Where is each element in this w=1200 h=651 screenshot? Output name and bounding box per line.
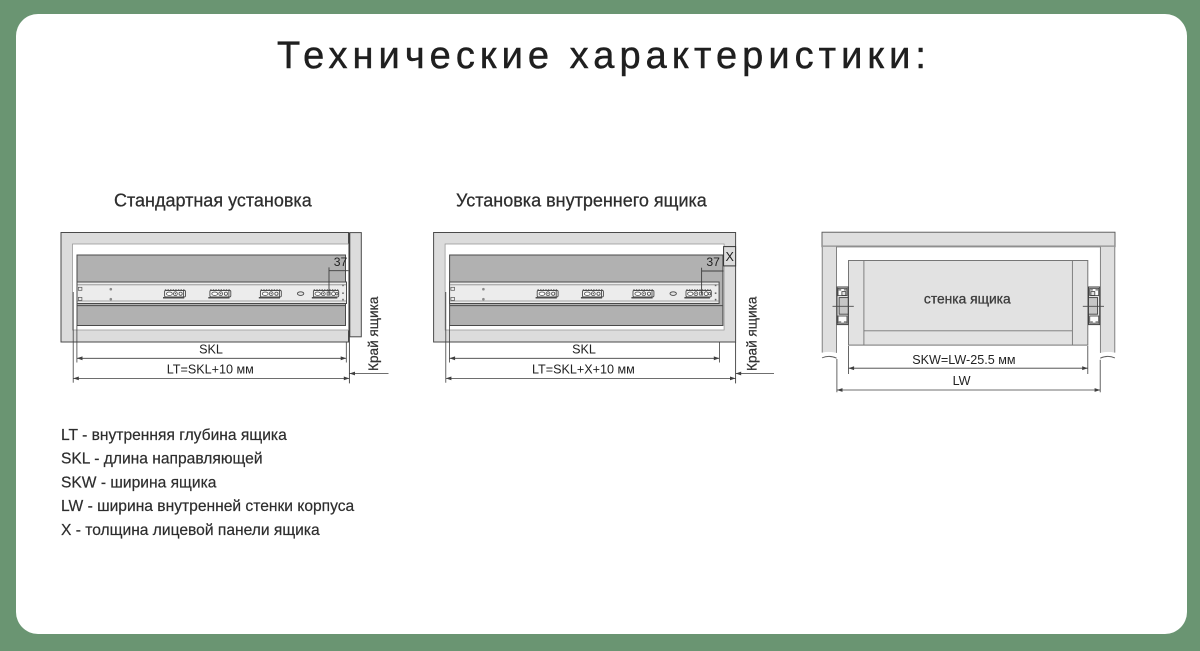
svg-text:SKW - ширина ящика: SKW - ширина ящика: [61, 474, 217, 491]
svg-text:Край ящика: Край ящика: [745, 296, 760, 371]
svg-text:Технические характеристики:: Технические характеристики:: [277, 35, 931, 77]
svg-text:LT - внутренняя глубина ящика: LT - внутренняя глубина ящика: [61, 427, 287, 444]
svg-text:LT=SKL+X+10 мм: LT=SKL+X+10 мм: [532, 362, 635, 376]
svg-text:37: 37: [706, 255, 720, 269]
svg-text:SKL: SKL: [199, 343, 223, 357]
svg-text:SKW=LW-25.5 мм: SKW=LW-25.5 мм: [912, 353, 1015, 367]
svg-text:Стандартная установка: Стандартная установка: [114, 190, 313, 210]
svg-text:Установка внутреннего ящика: Установка внутреннего ящика: [456, 190, 708, 210]
svg-text:X - толщина лицевой панели ящи: X - толщина лицевой панели ящика: [61, 522, 320, 539]
svg-text:37: 37: [334, 255, 348, 269]
svg-text:SKL - длина направляющей: SKL - длина направляющей: [61, 451, 263, 468]
svg-text:X: X: [725, 250, 734, 264]
svg-text:SKL: SKL: [572, 343, 596, 357]
svg-text:Край ящика: Край ящика: [366, 296, 381, 371]
svg-text:LW: LW: [953, 374, 971, 388]
svg-text:LW - ширина внутренней стенки: LW - ширина внутренней стенки корпуса: [61, 498, 355, 515]
svg-text:LT=SKL+10 мм: LT=SKL+10 мм: [167, 362, 254, 376]
svg-text:стенка ящика: стенка ящика: [924, 291, 1011, 306]
